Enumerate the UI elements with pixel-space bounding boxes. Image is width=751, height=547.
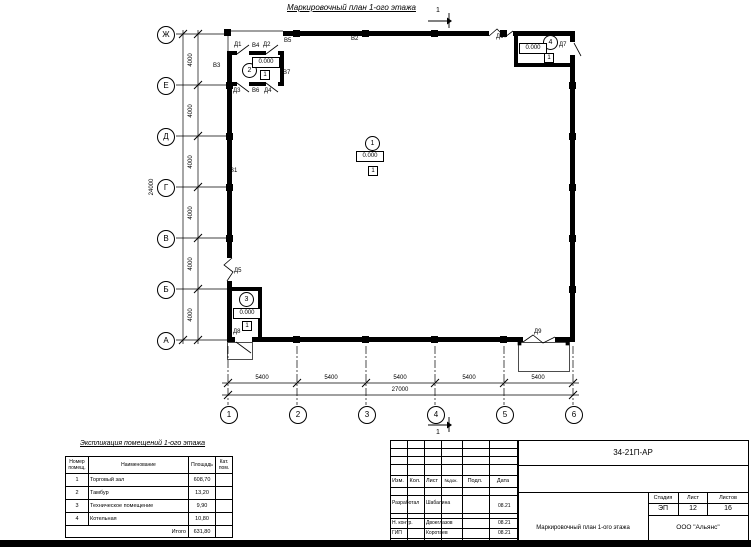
column-mark <box>569 184 576 191</box>
wall-label: В2 <box>351 36 358 42</box>
exp-cell-category <box>216 500 233 513</box>
door-label: Д2 <box>263 42 270 48</box>
door-label: Д8 <box>233 329 240 335</box>
dim-label: 4000 <box>188 155 194 168</box>
role-name: Двоеглазов <box>426 520 453 526</box>
drawing-title: Маркировочный план 1-ого этажа <box>536 525 630 531</box>
dim-label: 4000 <box>188 308 194 321</box>
dim-label: 4000 <box>188 257 194 270</box>
elevation-mark: 0.000 <box>356 151 384 162</box>
exp-total-area: 631,80 <box>189 526 216 538</box>
tb-line <box>390 475 518 476</box>
sheet-frame-bottom <box>0 540 751 547</box>
tb-line <box>648 503 749 504</box>
tb-col-list: Лист <box>426 478 438 484</box>
wall-label: В5 <box>284 38 291 44</box>
column-mark <box>362 336 369 343</box>
exp-cell-category <box>216 487 233 500</box>
explication-title: Экспликация помещений 1-ого этажа <box>80 440 205 447</box>
exp-cell-number: 3 <box>66 500 89 513</box>
floor-type-mark: 1 <box>260 70 270 80</box>
door-label: Д5 <box>234 268 241 274</box>
floor-type-mark: 1 <box>544 53 554 63</box>
room-number-badge: 1 <box>365 136 380 151</box>
table-total-row: Итого 631,80 <box>66 526 233 538</box>
left-dimension-lines <box>176 30 228 344</box>
exp-header-area: Площадь <box>189 457 216 474</box>
tb-line <box>648 515 749 516</box>
door-label: Д3 <box>233 88 240 94</box>
exp-cell-name: Торговый зал <box>89 474 189 487</box>
floor-type-mark: 1 <box>368 166 378 176</box>
exp-cell-name: Техническое помещение <box>89 500 189 513</box>
wall-segment <box>570 31 575 42</box>
table-row: 1 Торговый зал 608,70 <box>66 474 233 487</box>
wall-segment <box>227 287 262 291</box>
role-label: Разработал <box>392 500 419 506</box>
column-mark <box>293 30 300 37</box>
wall-label: В1 <box>230 168 237 174</box>
tb-line <box>518 492 749 493</box>
sheets-value: 16 <box>724 506 732 512</box>
axis-bubble-row: В <box>157 230 175 248</box>
column-mark <box>226 82 233 89</box>
door-label: Д1 <box>234 42 241 48</box>
stage-value: ЭП <box>658 506 668 512</box>
dim-label: 4000 <box>188 206 194 219</box>
column-mark <box>226 235 233 242</box>
axis-bubble-col: 1 <box>220 406 238 424</box>
wall-segment <box>514 63 575 67</box>
wall-break-symbols <box>224 29 555 343</box>
wall-segment <box>249 82 266 86</box>
exp-cell-name: Котельная <box>89 513 189 526</box>
tb-col-izm: Изм. <box>392 478 404 484</box>
exp-total-label: Итого <box>66 526 189 538</box>
door-label: Д6 <box>496 34 503 40</box>
wall-segment <box>514 31 518 67</box>
column-mark <box>226 184 233 191</box>
wall-segment <box>227 51 237 55</box>
tb-col-kol: Кол. <box>410 478 421 484</box>
exp-cell-area: 608,70 <box>189 474 216 487</box>
exp-cell-number: 4 <box>66 513 89 526</box>
axis-bubble-col: 5 <box>496 406 514 424</box>
axis-bubble-col: 3 <box>358 406 376 424</box>
plan-title: Маркировочный план 1-ого этажа <box>287 3 416 12</box>
role-label: Н. контр. <box>392 520 413 526</box>
wall-label: В3 <box>213 63 220 69</box>
floor-type-mark: 1 <box>242 321 252 331</box>
sheet-value: 12 <box>689 506 697 512</box>
axis-bubble-row: Б <box>157 281 175 299</box>
column-mark <box>431 30 438 37</box>
exp-cell-category <box>216 513 233 526</box>
tb-line <box>390 513 518 514</box>
dim-label: 5400 <box>531 375 544 381</box>
table-row: 3 Техническое помещение 9,90 <box>66 500 233 513</box>
wall-segment <box>249 51 266 55</box>
exp-cell-area: 10,80 <box>189 513 216 526</box>
door-leaves <box>236 43 581 353</box>
tb-line <box>390 518 518 519</box>
tb-line <box>390 495 518 496</box>
axis-bubble-row: Е <box>157 77 175 95</box>
dim-label: 5400 <box>393 375 406 381</box>
exp-header-category: Кат. пом. <box>216 457 233 474</box>
tb-line <box>390 487 518 488</box>
sheet-label: Лист <box>687 495 699 501</box>
tb-col-podl: Подл. <box>468 478 483 484</box>
exp-cell-number: 1 <box>66 474 89 487</box>
column-mark <box>224 29 231 36</box>
table-row: 4 Котельная 10,80 <box>66 513 233 526</box>
tb-line <box>648 492 649 541</box>
doc-number: 34-21П-АР <box>613 450 653 456</box>
wall-segment <box>555 337 575 342</box>
column-mark <box>500 336 507 343</box>
axis-bubble-row: Г <box>157 179 175 197</box>
role-name: Шабалина <box>426 500 450 506</box>
axis-bubble-col: 4 <box>427 406 445 424</box>
role-date: 08.21 <box>498 520 511 526</box>
wall-segment <box>570 55 575 342</box>
wall-label: В6 <box>252 88 259 94</box>
dim-total-label: 24000 <box>149 179 155 196</box>
column-mark <box>431 336 438 343</box>
porches <box>228 342 570 372</box>
role-date: 08.21 <box>498 503 511 509</box>
table-row: 2 Тамбур 13,20 <box>66 487 233 500</box>
wall-segment <box>280 51 284 86</box>
explication-table: Номер помещ. Наименование Площадь Кат. п… <box>65 456 233 538</box>
column-mark <box>362 30 369 37</box>
exp-cell-area: 9,90 <box>189 500 216 513</box>
tb-col-ndoc: №док. <box>444 478 457 484</box>
axis-bubble-row: А <box>157 332 175 350</box>
tb-col-data: Дата <box>497 478 509 484</box>
exp-header-number: Номер помещ. <box>66 457 89 474</box>
door-label: Д7 <box>559 42 566 48</box>
exp-cell-category <box>216 474 233 487</box>
exp-cell-number: 2 <box>66 487 89 500</box>
role-date: 08.21 <box>498 530 511 536</box>
dim-label: 5400 <box>255 375 268 381</box>
role-label: ГИП <box>392 530 402 536</box>
tb-line <box>390 448 518 449</box>
role-name: Коротаев <box>426 530 448 536</box>
room-number-badge: 3 <box>239 292 254 307</box>
section-number-bottom: 1 <box>436 429 440 436</box>
section-number-top: 1 <box>436 7 440 14</box>
column-mark <box>226 133 233 140</box>
dim-label: 4000 <box>188 53 194 66</box>
column-mark <box>569 82 576 89</box>
tb-line <box>390 464 518 465</box>
dim-label: 4000 <box>188 104 194 117</box>
dim-total-label: 27000 <box>392 387 409 393</box>
exp-cell-category <box>216 526 233 538</box>
exp-cell-name: Тамбур <box>89 487 189 500</box>
column-mark <box>569 133 576 140</box>
wall-segment <box>283 31 489 36</box>
sheets-label: Листов <box>719 495 737 501</box>
stage-label: Стадия <box>654 495 673 501</box>
axis-bubble-col: 2 <box>289 406 307 424</box>
dim-label: 5400 <box>324 375 337 381</box>
elevation-mark: 0.000 <box>233 308 261 319</box>
door-label: Д4 <box>264 88 271 94</box>
company-name: ООО "Альянс" <box>676 525 719 531</box>
door-label: Д9 <box>534 329 541 335</box>
wall-label: В4 <box>252 43 259 49</box>
tb-line <box>390 528 518 529</box>
column-mark <box>569 286 576 293</box>
wall-label: В7 <box>283 70 290 76</box>
tb-line <box>390 456 518 457</box>
exp-header-name: Наименование <box>89 457 189 474</box>
tb-line <box>518 465 749 466</box>
axis-bubble-row: Ж <box>157 26 175 44</box>
column-mark <box>293 336 300 343</box>
section-arrow-top <box>428 13 452 28</box>
elevation-mark: 0.000 <box>252 57 280 68</box>
wall-segment <box>513 31 575 36</box>
axis-bubble-col: 6 <box>565 406 583 424</box>
exp-cell-area: 13,20 <box>189 487 216 500</box>
elevation-mark: 0.000 <box>519 43 547 54</box>
axis-bubble-row: Д <box>157 128 175 146</box>
drawing-sheet: Маркировочный план 1-ого этажа 1 1 Ж Е Д… <box>0 0 751 547</box>
dim-label: 5400 <box>462 375 475 381</box>
tb-line <box>390 538 518 539</box>
column-mark <box>569 235 576 242</box>
